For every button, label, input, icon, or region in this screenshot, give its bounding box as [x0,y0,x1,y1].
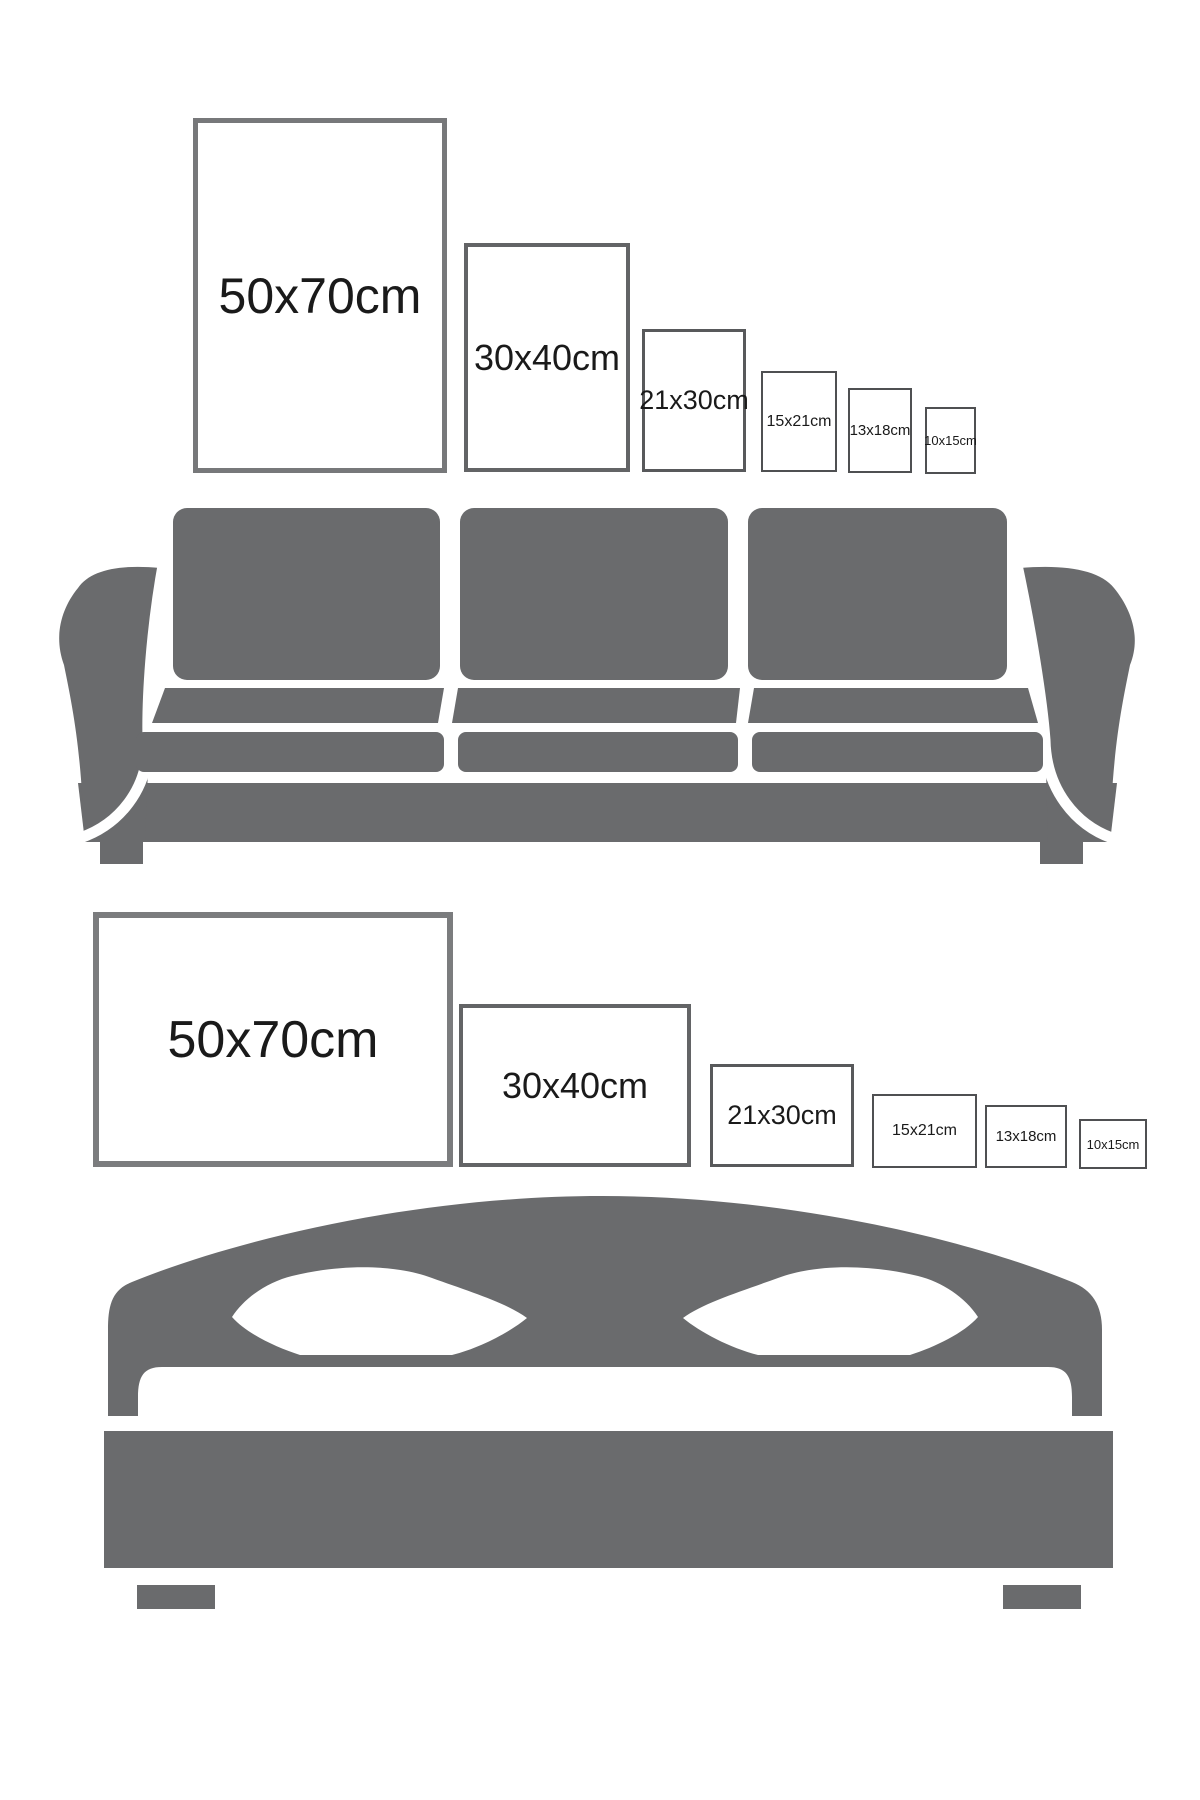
bed-icon [0,1180,1200,1640]
sofa-back-cushion-right [748,508,1007,680]
bed-foot-left [137,1585,215,1609]
sofa-seat-front-left [136,732,444,772]
sofa-seat-middle [452,688,740,723]
size-frame-15x21-landscape: 15x21cm [872,1094,977,1168]
size-label: 10x15cm [924,434,977,447]
size-label: 30x40cm [474,340,620,376]
size-label: 50x70cm [168,1014,379,1066]
sofa-base [78,783,1117,842]
size-frame-21x30-landscape: 21x30cm [710,1064,854,1167]
size-frame-30x40-portrait: 30x40cm [464,243,630,472]
sofa-back-cushion-middle [460,508,728,680]
size-label: 21x30cm [727,1102,837,1129]
size-frame-30x40-landscape: 30x40cm [459,1004,691,1167]
size-frame-13x18-portrait: 13x18cm [848,388,912,473]
size-frame-10x15-portrait: 10x15cm [925,407,976,474]
size-label: 13x18cm [996,1129,1057,1144]
sofa-back-cushion-left [173,508,440,680]
size-label: 15x21cm [767,414,832,430]
size-label: 13x18cm [850,423,911,438]
size-label: 50x70cm [219,271,422,321]
sofa-foot-left [100,842,143,864]
size-frame-15x21-portrait: 15x21cm [761,371,837,472]
sofa-seat-front-middle [458,732,738,772]
size-label: 15x21cm [892,1123,957,1139]
size-label: 10x15cm [1087,1138,1140,1151]
size-frame-50x70-portrait: 50x70cm [193,118,447,473]
sofa-seat-right [748,688,1038,723]
poster-size-guide: 50x70cm 30x40cm 21x30cm 15x21cm 13x18cm … [0,0,1200,1800]
size-frame-13x18-landscape: 13x18cm [985,1105,1067,1168]
sofa-icon [0,470,1200,890]
bed-foot-right [1003,1585,1081,1609]
size-frame-21x30-portrait: 21x30cm [642,329,746,472]
size-frame-10x15-landscape: 10x15cm [1079,1119,1147,1169]
bed-base [104,1431,1113,1568]
sofa-seat-left [152,688,444,723]
size-label: 30x40cm [502,1068,648,1104]
size-label: 21x30cm [639,387,749,414]
sofa-foot-right [1040,842,1083,864]
sofa-seat-front-right [752,732,1043,772]
size-frame-50x70-landscape: 50x70cm [93,912,453,1167]
